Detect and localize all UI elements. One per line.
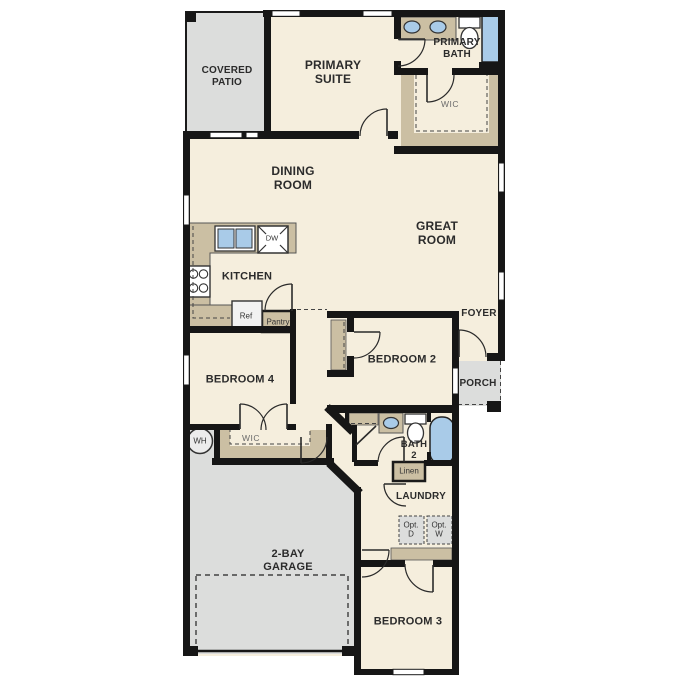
- floor-plan: COVEREDPATIO PRIMARYSUITE PRIMARYBATH WI…: [0, 0, 687, 687]
- label-opt-washer: Opt.W: [431, 521, 446, 540]
- kitchen-sink-bowl-left: [218, 229, 234, 248]
- label-bedroom-2: BEDROOM 2: [368, 354, 436, 367]
- label-bedroom-4: BEDROOM 4: [206, 374, 274, 387]
- label-garage: 2-BAYGARAGE: [263, 548, 312, 574]
- label-foyer: FOYER: [461, 308, 496, 320]
- laundry-shelf: [391, 548, 452, 560]
- kitchen-counter-south: [186, 305, 236, 328]
- label-porch: PORCH: [459, 378, 496, 390]
- primary-bath-sink-right: [430, 21, 446, 33]
- kitchen-sink-bowl-right: [236, 229, 252, 248]
- label-great-room: GREATROOM: [416, 219, 458, 247]
- bath2-tub: [430, 417, 454, 464]
- label-kitchen: KITCHEN: [222, 271, 272, 284]
- label-dining-room: DININGROOM: [271, 164, 314, 192]
- stove-icon: [187, 266, 210, 297]
- label-bedroom-4-wic: WIC: [242, 433, 260, 443]
- floor-plan-drawing: [0, 0, 687, 687]
- label-pantry: Pantry: [266, 317, 289, 326]
- label-opt-dryer: Opt.D: [403, 521, 418, 540]
- label-dishwasher: DW: [266, 235, 279, 244]
- label-covered-patio: COVEREDPATIO: [202, 65, 253, 89]
- label-water-heater: WH: [193, 436, 206, 445]
- bath2-sink: [384, 418, 399, 429]
- patio-corner-post: [186, 12, 196, 22]
- label-primary-bath: PRIMARYBATH: [433, 37, 480, 61]
- label-linen: Linen: [399, 466, 419, 475]
- primary-bath-sink-left: [404, 21, 420, 33]
- label-refrigerator: Ref: [240, 311, 252, 320]
- label-primary-suite: PRIMARYSUITE: [305, 58, 361, 86]
- label-bath-2: BATH2: [401, 439, 427, 461]
- label-laundry: LAUNDRY: [396, 491, 446, 503]
- label-primary-wic: WIC: [441, 99, 459, 109]
- label-bedroom-3: BEDROOM 3: [374, 616, 442, 629]
- bedroom4-wic-shelf-bottom: [216, 446, 332, 458]
